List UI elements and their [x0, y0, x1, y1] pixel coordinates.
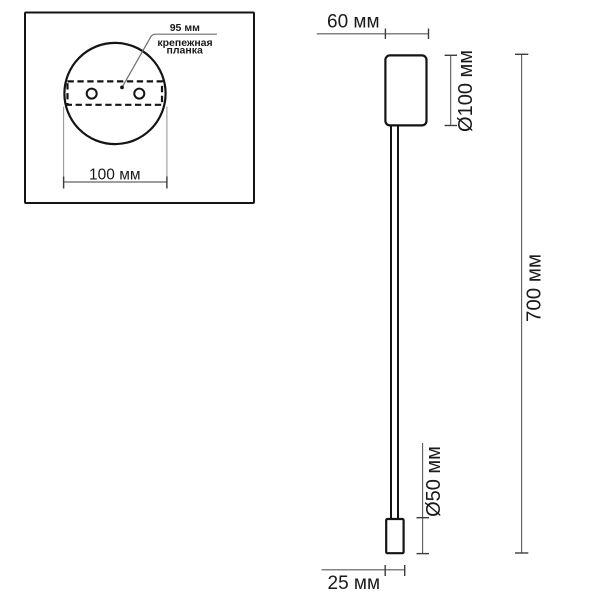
svg-text:Ø100 мм: Ø100 мм [455, 50, 477, 132]
svg-text:планка: планка [167, 44, 203, 56]
svg-text:700 мм: 700 мм [523, 254, 546, 322]
svg-text:25 мм: 25 мм [328, 573, 381, 594]
svg-text:Ø50 мм: Ø50 мм [423, 446, 445, 517]
svg-text:60 мм: 60 мм [327, 12, 380, 33]
svg-text:95 мм: 95 мм [170, 22, 200, 34]
svg-text:100 мм: 100 мм [89, 167, 140, 184]
